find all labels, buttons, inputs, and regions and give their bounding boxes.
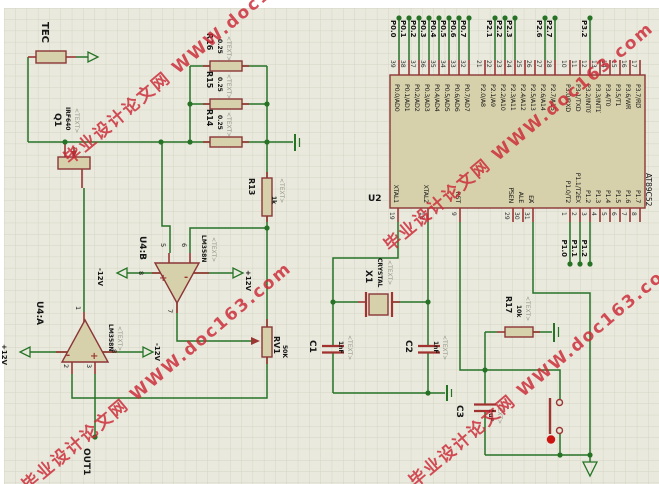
label-c1-ref: C1	[307, 340, 317, 353]
pin-number: 34	[439, 60, 446, 68]
pin-number: 4	[590, 212, 597, 216]
label-x1-value: CRYSTAL	[376, 258, 383, 288]
pin-label: P3.3/INT1	[594, 84, 601, 113]
label-minus12v: -12V	[153, 343, 161, 362]
label-u4a-text: <TEXT>	[116, 326, 123, 351]
u4b-pin6: 6	[180, 243, 188, 247]
label-x1-text: <TEXT>	[386, 260, 393, 285]
pin-label: P2.2/A10	[499, 84, 506, 111]
pin-label: P0.7/AD7	[463, 84, 470, 112]
pin-number: 38	[399, 60, 406, 68]
label-plus12v: +12V	[0, 344, 8, 366]
pin-number: 9	[450, 212, 457, 216]
pin-number: 24	[505, 60, 512, 68]
label-r13-value: 1k	[270, 196, 277, 205]
pin-number: 26	[525, 60, 532, 68]
net-label: P0.6	[449, 20, 457, 38]
resistor-r15[interactable]	[210, 99, 242, 109]
inverting-sign: -	[184, 272, 188, 283]
label-rv1-ref: RV1	[272, 336, 281, 354]
noninverting-sign: +	[90, 351, 98, 362]
label-r15-value: 0.25	[216, 77, 223, 92]
pin-label: P1.4	[604, 190, 611, 203]
net-label: P3.2	[580, 20, 588, 38]
pin-number: 35	[429, 60, 436, 68]
pin-label: P1.7	[634, 190, 641, 203]
pin-label: P0.2/AD2	[413, 84, 420, 112]
pin-label: P0.4/AD4	[433, 84, 440, 112]
pin-label: P0.0/AD0	[393, 84, 400, 112]
pin-number: 23	[495, 60, 502, 68]
net-label: P0.4	[429, 20, 437, 38]
label-rv1-value: 50K	[281, 345, 288, 358]
label-minus12v: -12V	[96, 268, 104, 287]
pin-number: 33	[449, 60, 456, 68]
pin-label: XTAL1	[392, 185, 399, 204]
net-label: P1.2	[580, 239, 588, 257]
resistor-r17[interactable]	[505, 327, 533, 337]
noninverting-sign: +	[159, 273, 167, 284]
pin-number: 2	[570, 212, 577, 216]
resistor-r14[interactable]	[210, 137, 242, 147]
junction-dot	[577, 261, 582, 266]
label-c2-text: <TEXT>	[441, 335, 448, 360]
pin-label: P3.4/T0	[604, 84, 611, 107]
u4b-pin5: 5	[159, 243, 167, 247]
pin-label: EA	[527, 195, 534, 204]
net-label: P2.7	[545, 20, 553, 38]
pin-number: 1	[560, 212, 567, 216]
pin-number: 3	[580, 212, 587, 216]
label-q1-value: IRF640	[64, 107, 71, 130]
pin-number: 21	[475, 60, 482, 68]
label-x1-ref: X1	[363, 270, 373, 283]
label-u2-ref: U2	[368, 194, 382, 204]
pin-label: P2.5/A13	[529, 84, 536, 111]
pin-number: 22	[485, 60, 492, 68]
pin-label: P3.7/RD	[634, 84, 641, 108]
pin-number: 11	[570, 60, 577, 68]
net-label: P0.2	[409, 20, 417, 38]
pin-number: 39	[389, 60, 396, 68]
label-r14-ref: R14	[205, 109, 214, 127]
inverting-sign: -	[66, 350, 70, 361]
pin-label: P0.1/AD1	[403, 84, 410, 112]
label-u4a-ref: U4:A	[34, 301, 44, 325]
schematic-canvas[interactable]: - + + - TEC Q1	[0, 0, 659, 484]
net-label: P1.1	[570, 239, 578, 257]
pin-label: P2.1/A9	[489, 84, 496, 107]
pin-number: 19	[388, 212, 395, 220]
label-r15-ref: R15	[205, 71, 214, 89]
pin-label: P3.6/WR	[624, 84, 631, 110]
label-c2-ref: C2	[403, 340, 413, 353]
pin-number: 6	[610, 212, 617, 216]
label-u4b-part: LM358N	[200, 235, 207, 262]
pin-label: P1.6	[624, 190, 631, 203]
pin-label: P1.2	[584, 190, 591, 203]
junction-dot	[587, 261, 592, 266]
net-label: P2.6	[535, 20, 543, 38]
pin-number: 32	[459, 60, 466, 68]
net-label: P0.0	[389, 20, 397, 38]
junction-dot	[567, 261, 572, 266]
label-c3-ref: C3	[454, 405, 464, 418]
label-r14-value: 0.25	[216, 115, 223, 130]
pin-number: 12	[580, 60, 587, 68]
net-label: P0.7	[459, 20, 467, 38]
pin-number: 37	[409, 60, 416, 68]
label-r14-text: <TEXT>	[225, 112, 232, 137]
net-label: P2.1	[485, 20, 493, 38]
net-label: P0.3	[419, 20, 427, 38]
label-tec: TEC	[39, 22, 50, 43]
label-mcu-part: AT89C52	[644, 173, 653, 207]
pin-number: 28	[545, 60, 552, 68]
pin-number: 31	[523, 212, 530, 220]
button-red-indicator	[547, 435, 555, 443]
u4a-pin2: 2	[62, 364, 70, 368]
label-c2-value: 1nF	[432, 341, 439, 354]
pin-label: P1.1/T2EX	[574, 173, 581, 204]
u4a-pin1: 1	[74, 306, 82, 310]
label-q1-text: <TEXT>	[73, 108, 80, 133]
u4a-pin3: 3	[85, 364, 93, 368]
pin-number: 5	[600, 212, 607, 216]
pin-number: 8	[630, 212, 637, 216]
pin-label: P2.0/A8	[479, 84, 486, 107]
u4b-pin7: 7	[166, 309, 174, 313]
pin-label: P0.5/AD5	[443, 84, 450, 112]
tec-component[interactable]	[36, 51, 66, 63]
u4a-pin8: 8	[110, 349, 118, 353]
pin-label: ALE	[517, 192, 524, 203]
net-label: P0.5	[439, 20, 447, 38]
label-r13-text: <TEXT>	[278, 178, 285, 203]
label-u4a-part: LM358N	[107, 324, 114, 351]
pin-label: P1.3	[594, 190, 601, 203]
net-label: P0.1	[399, 20, 407, 38]
label-r17-text: <TEXT>	[524, 296, 531, 321]
label-r13-ref: R13	[247, 178, 256, 195]
net-label: P2.3	[505, 20, 513, 38]
label-u4b-text: <TEXT>	[210, 237, 217, 262]
pin-label: P1.5	[614, 190, 621, 203]
label-c1-value: 1nF	[337, 341, 344, 354]
pin-label: P2.3/A11	[509, 84, 516, 111]
pin-number: 10	[560, 60, 567, 68]
label-q1-ref: Q1	[52, 113, 62, 127]
label-c1-text: <TEXT>	[346, 335, 353, 360]
crystal-x1[interactable]	[366, 292, 392, 317]
pin-label: P2.4/A12	[519, 84, 526, 111]
pin-number: 29	[503, 212, 510, 220]
pin-number: 36	[419, 60, 426, 68]
label-r15-text: <TEXT>	[225, 74, 232, 99]
pin-label: P1.0/T2	[564, 181, 571, 204]
label-r17-ref: R17	[504, 296, 513, 313]
pin-label: P0.6/AD6	[453, 84, 460, 112]
pin-label: P3.5/T1	[614, 84, 621, 107]
pin-number: 17	[630, 60, 637, 68]
pin-number: 30	[513, 212, 520, 220]
label-u4b-ref: U4:B	[137, 236, 147, 260]
label-r17-value: 10k	[515, 305, 522, 318]
resistor-r16[interactable]	[210, 61, 242, 71]
pin-number: 27	[535, 60, 542, 68]
pin-label: PSEN	[507, 187, 514, 203]
pin-number: 25	[515, 60, 522, 68]
schematic-sheet: - + + - TEC Q1	[0, 0, 659, 484]
u4b-pin8: 8	[137, 271, 145, 275]
net-label: P2.2	[495, 20, 503, 38]
pin-label: P0.3/AD3	[423, 84, 430, 112]
pin-number: 7	[620, 212, 627, 216]
net-label: P1.0	[560, 239, 568, 257]
